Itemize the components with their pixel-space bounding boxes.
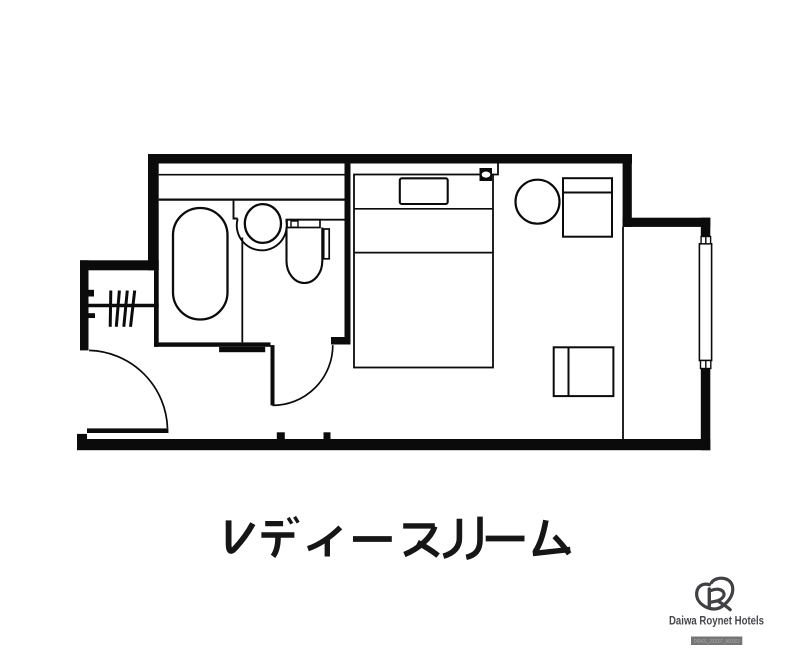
svg-text:Daiwa Roynet Hotels: Daiwa Roynet Hotels	[669, 614, 764, 628]
svg-text:DRH01_202007_A00003: DRH01_202007_A00003	[694, 639, 740, 645]
